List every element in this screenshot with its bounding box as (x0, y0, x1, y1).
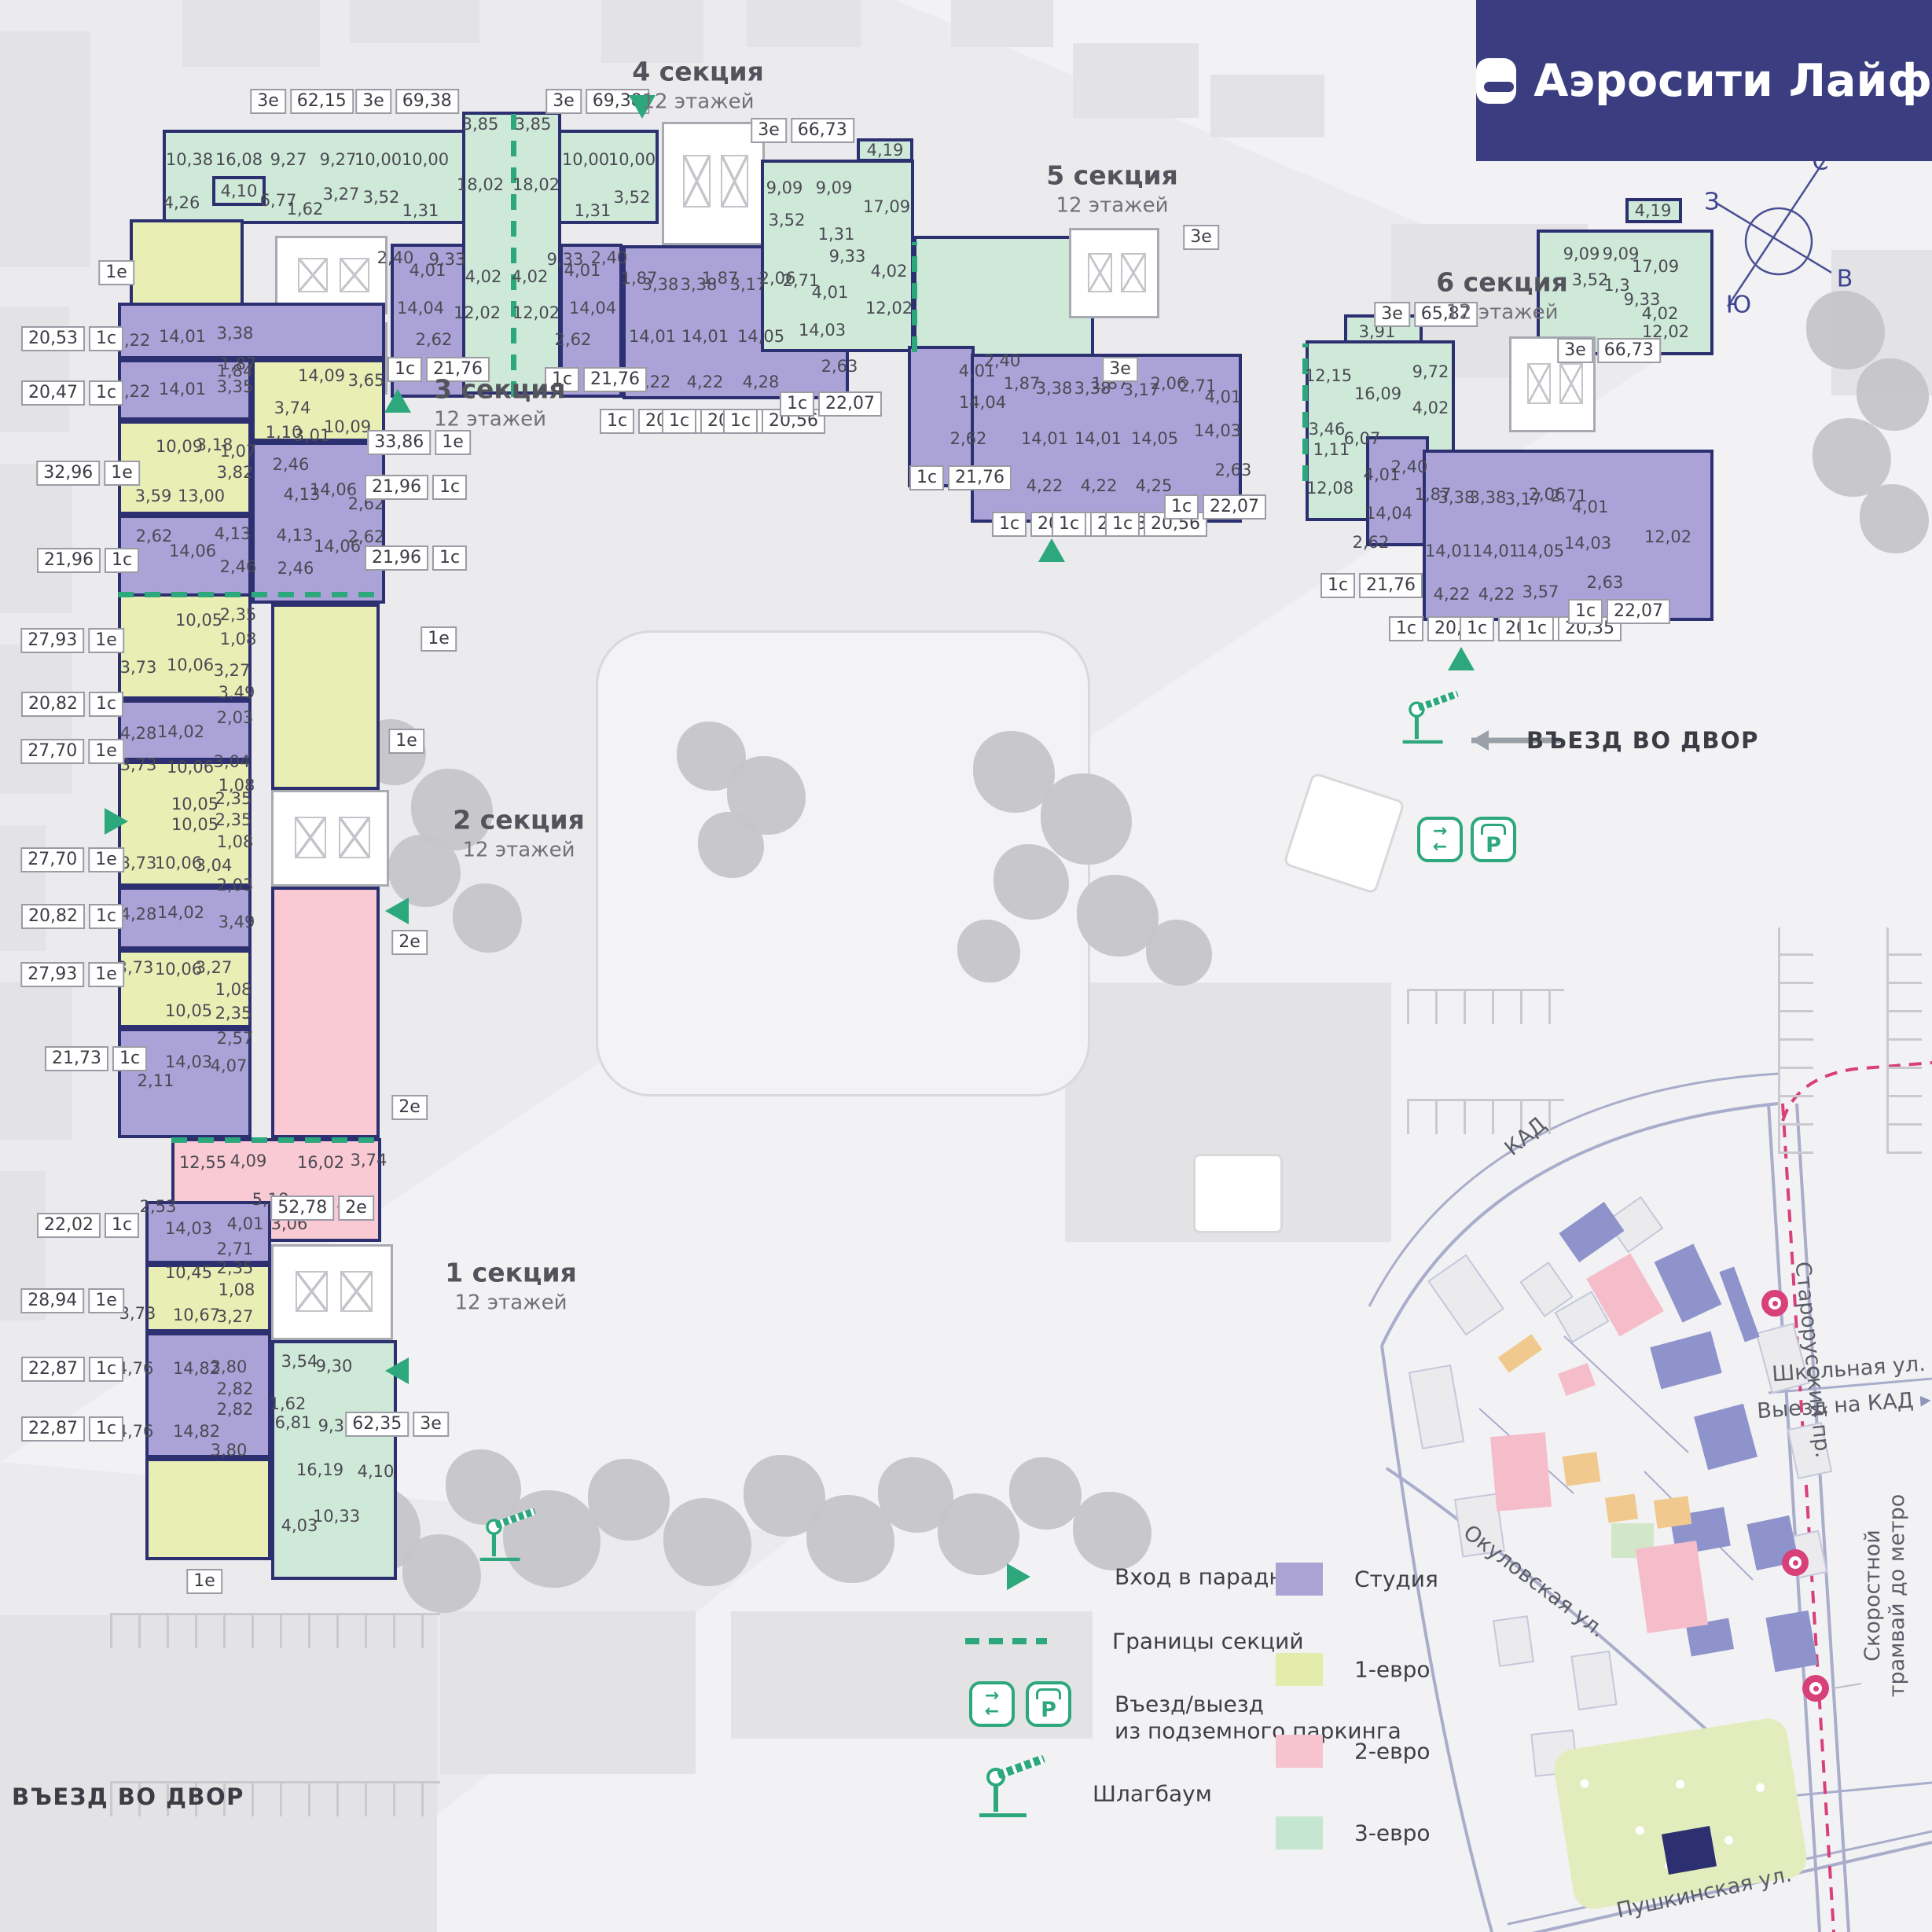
tram-route-label-line: Скоростной (1860, 1494, 1885, 1698)
section-boundary (511, 110, 516, 397)
arrow-glyph: ← (1433, 839, 1447, 855)
tram-stop-dot (1793, 1560, 1798, 1566)
area-tag-value: 1е (88, 739, 124, 764)
minimap-building (1765, 1611, 1817, 1672)
tram-route-label-line: трамвай до метро (1885, 1494, 1909, 1698)
room-area-label: 14,05 (1517, 542, 1564, 560)
neighbor-building (182, 0, 320, 67)
room-area-label: 12,02 (1644, 527, 1691, 546)
tree (957, 920, 1020, 983)
room-area-label: 2,57 (217, 1029, 254, 1048)
room-area-label: 4,03 (281, 1516, 318, 1535)
room-area-label: 10,06 (167, 656, 214, 674)
room-area-label: 3,74 (351, 1151, 388, 1170)
minimap-building (1493, 1615, 1534, 1667)
room-area-label: 3,27 (217, 1307, 254, 1326)
neighbor-building (350, 0, 479, 43)
apartment-block[interactable] (271, 887, 380, 1138)
section-floors: 12 этажей (1436, 301, 1568, 325)
room-area-label: 1,31 (818, 225, 855, 244)
room-area-label: 12,02 (865, 299, 913, 318)
area-tag[interactable]: 22,021с (37, 1213, 139, 1238)
room-area-label: 14,04 (1365, 504, 1412, 523)
tram-route-label: Скоростнойтрамвай до метро (1860, 1494, 1909, 1698)
room-area-label: 16,09 (1354, 384, 1401, 403)
area-tag-type: 1е (98, 260, 134, 285)
elevator-shaft-icon (340, 1271, 373, 1313)
room-area-label: 3,57 (1522, 582, 1559, 601)
area-tag[interactable]: 3е62,15 (250, 89, 354, 114)
room-area-label: 6,81 (275, 1413, 312, 1432)
area-tag-type: 1с (1052, 512, 1086, 537)
room-area-label: 4,02 (1642, 304, 1679, 323)
room-area-label: 3,82 (217, 463, 254, 482)
area-tag-value: 1е (88, 847, 124, 872)
area-tag-value: 66,73 (1597, 338, 1661, 363)
room-area-label: 3,38 (1470, 488, 1507, 507)
area-tag[interactable]: 28,941е (20, 1288, 124, 1313)
area-tag-type: 3е (545, 89, 582, 114)
area-tag-value: 1е (88, 1288, 124, 1313)
neighbor-building (0, 464, 72, 613)
area-tag[interactable]: 3е69,38 (355, 89, 459, 114)
room-area-label: 16,19 (296, 1460, 343, 1479)
neighbor-building (0, 645, 72, 794)
room-area-label: 13,00 (178, 487, 225, 505)
room-area-label: 2,46 (220, 557, 257, 576)
room-area-label: 2,11 (138, 1071, 174, 1090)
minimap-building (1650, 1331, 1722, 1390)
room-area-label: 4,01 (812, 283, 849, 302)
room-area-label: 3,73 (120, 755, 157, 774)
area-tag-value: 1с (112, 1046, 147, 1071)
room-area-label: 10,38 (166, 150, 213, 169)
room-area-label: 3,74 (274, 399, 311, 417)
area-tag-type: 20,53 (21, 326, 85, 351)
area-tag-type: 21,96 (37, 548, 101, 573)
room-area-label: 2,62 (136, 527, 173, 545)
area-tag[interactable]: 20,821с (21, 904, 123, 929)
room-area-label: 17,09 (1632, 257, 1679, 276)
area-tag-type: 1с (1460, 616, 1494, 641)
compass-axis (1716, 203, 1841, 278)
room-area-label: 4,28 (120, 724, 157, 743)
area-tag-value: 1с (89, 904, 123, 929)
neighbor-building (747, 0, 861, 47)
elevator-shaft-icon (683, 155, 711, 208)
tree (1813, 418, 1891, 497)
area-tag[interactable]: 20,531с (21, 326, 123, 351)
room-area-label: 12,08 (1306, 479, 1354, 498)
area-tag[interactable]: 20,471с (21, 380, 123, 406)
apartment-block[interactable] (252, 442, 385, 604)
room-area-label: 14,03 (165, 1219, 212, 1238)
area-tag[interactable]: 1с22,07 (780, 391, 882, 417)
stair-core (271, 790, 389, 887)
room-area-label: 2,63 (1587, 573, 1624, 592)
room-area-label: 3,85 (515, 115, 552, 134)
area-tag-type: 21,96 (365, 545, 428, 571)
elevator-shaft-icon (298, 258, 328, 292)
room-area-label: 4,01 (959, 362, 996, 380)
room-area-label: 3,52 (769, 211, 806, 230)
area-tag-type: 28,94 (20, 1288, 84, 1313)
room-area-label: 14,04 (959, 393, 1006, 412)
neighbor-building (951, 0, 1053, 47)
underground-parking-icon: P (1471, 817, 1516, 862)
compass-needle (1728, 156, 1827, 307)
entrance-marker[interactable] (385, 1357, 409, 1384)
room-area-label: 2,82 (217, 1379, 254, 1398)
area-tag[interactable]: 1е (186, 1569, 222, 1594)
room-area-label: 10,05 (165, 1001, 212, 1020)
room-area-label: 3,46 (1309, 420, 1346, 439)
section-name: 3 секция (434, 374, 566, 405)
area-tag[interactable]: 2е (391, 930, 428, 955)
room-area-label: 10,05 (175, 611, 222, 630)
room-area-label: 3,38 (642, 275, 679, 294)
compass-letter: З (1704, 189, 1719, 216)
room-area-label: 2,03 (217, 876, 254, 894)
area-tag[interactable]: 3е (1102, 357, 1138, 382)
room-area-label: 4,22 (1027, 476, 1063, 495)
room-area-label: 2,71 (217, 1240, 254, 1258)
room-area-label: 3,80 (211, 1357, 248, 1376)
section-label-4: 4 секция12 этажей (632, 57, 764, 114)
area-tag-type: 3е (250, 89, 286, 114)
area-tag-type: 2е (391, 930, 428, 955)
area-tag[interactable]: 1е (421, 626, 457, 652)
area-tag-value: 21,76 (583, 367, 647, 392)
area-tag-type: 1с (992, 512, 1027, 537)
area-tag-value: 1с (89, 380, 123, 406)
section-name: 4 секция (632, 57, 764, 87)
room-area-label: 2,82 (217, 1400, 254, 1419)
room-area-label: 10,33 (313, 1507, 360, 1526)
area-tag-type: 21,96 (365, 475, 428, 500)
room-area-label: 14,03 (799, 321, 846, 340)
legend-type-swatch (1276, 1816, 1323, 1849)
legend-type-swatch (1276, 1735, 1323, 1768)
area-tag[interactable]: 1с22,07 (1164, 494, 1266, 520)
elevator-shaft-icon (296, 1271, 328, 1313)
room-area-label: 4,10 (358, 1462, 395, 1481)
area-tag[interactable]: 27,931е (20, 962, 124, 987)
area-tag-type: 1с (1568, 599, 1603, 624)
room-area-label: 2,40 (377, 248, 414, 267)
tram-stop-inner (1789, 1556, 1802, 1569)
apartment-block[interactable] (145, 1458, 271, 1560)
tree (388, 835, 461, 907)
room-area-label: 10,00 (402, 150, 449, 169)
tree (1073, 1492, 1151, 1570)
site-plan: Аэросити Лайф Вход в параднуюГраницы сек… (0, 0, 1932, 1932)
entrance-marker[interactable] (384, 389, 411, 413)
room-area-label: 4,22 (1434, 585, 1471, 604)
room-area-label: 4,02 (871, 262, 908, 281)
room-area-label: 4,25 (1136, 476, 1173, 495)
area-tag-type: 20,82 (21, 692, 85, 717)
room-area-label: 4,01 (227, 1214, 264, 1233)
section-label-6: 6 секция12 этажей (1436, 267, 1568, 325)
elevator-shaft-icon (1559, 363, 1583, 405)
area-tag-value: 21,76 (948, 465, 1012, 490)
minimap-building (1490, 1432, 1552, 1511)
area-tag-value: 1с (105, 1213, 139, 1238)
area-tag[interactable]: 27,931е (20, 628, 124, 653)
room-area-label: 3,27 (196, 958, 233, 977)
park-tree-dot (1580, 1779, 1590, 1789)
room-area-label: 14,09 (298, 366, 345, 385)
room-area-label: 9,27 (270, 150, 307, 169)
apartment-block[interactable] (271, 604, 380, 790)
area-tag-type: 27,93 (20, 962, 84, 987)
stair-core (271, 1244, 393, 1340)
section-floors: 12 этажей (1046, 194, 1178, 218)
legend-type-label: 3-евро (1354, 1820, 1431, 1846)
parking-row (1886, 927, 1922, 1154)
area-tag-type: 1с (1519, 616, 1554, 641)
minimap-building (1655, 1243, 1722, 1322)
area-tag-value: 1е (104, 461, 140, 486)
minimap-building (1654, 1496, 1692, 1529)
street-label: Выезд на КАД ▸ (1756, 1387, 1931, 1423)
area-tag-type: 27,70 (20, 739, 84, 764)
room-area-label: 3,65 (348, 371, 385, 390)
entrance-marker[interactable] (385, 898, 409, 924)
area-tag[interactable]: 32,961е (36, 461, 140, 486)
tree (453, 883, 522, 953)
room-area-label: 3,80 (211, 1441, 248, 1460)
room-area-label: 1,08 (217, 832, 254, 851)
barrier-base (480, 1558, 520, 1561)
area-tag-value: 1с (89, 1357, 123, 1382)
exit-arrow-glyph: ▸ (1912, 1387, 1931, 1412)
area-tag-type: 1е (388, 729, 424, 754)
area-tag[interactable]: 3е (1183, 225, 1219, 250)
barrier-base (1403, 740, 1443, 744)
area-tag-value: 1с (105, 548, 139, 573)
area-tag[interactable]: 52,782е (270, 1196, 374, 1221)
area-tag-type: 2е (391, 1095, 428, 1120)
area-tag[interactable]: 21,731с (45, 1046, 147, 1071)
area-tag[interactable]: 27,701е (20, 847, 124, 872)
area-tag-value: 22,07 (818, 391, 882, 417)
room-area-label: 4,28 (120, 905, 157, 924)
compass-circle (1746, 208, 1812, 274)
room-area-label: 1,08 (219, 1280, 255, 1299)
room-area-label: 14,05 (737, 327, 784, 346)
room-area-label: 14,01 (1425, 542, 1472, 560)
area-tag[interactable]: 1с22,07 (1568, 599, 1670, 624)
tram-stop-icon (1782, 1549, 1809, 1576)
area-tag-type: 21,73 (45, 1046, 108, 1071)
room-area-label: 2,03 (217, 708, 254, 727)
area-tag[interactable]: 33,861е (367, 430, 471, 455)
room-area-label: 4,22 (687, 373, 724, 391)
room-area-label: 4,13 (277, 526, 314, 545)
tram-stop-inner (1809, 1682, 1822, 1695)
entrance-marker[interactable] (105, 808, 128, 835)
area-tag-value: 21,76 (1359, 573, 1423, 598)
room-area-label: 4,22 (1478, 585, 1515, 604)
room-area-label: 2,35 (217, 1258, 254, 1277)
room-area-label: 10,05 (171, 795, 219, 814)
room-area-label: 14,06 (169, 542, 216, 560)
room-area-label: 12,55 (179, 1153, 226, 1172)
neighbor-building (1073, 43, 1199, 118)
area-tag[interactable]: 1е (388, 729, 424, 754)
logo-text: Аэросити Лайф (1533, 55, 1932, 107)
area-tag[interactable]: 1с21,76 (909, 465, 1012, 490)
elevator-shaft-icon (295, 817, 326, 858)
room-area-label: 9,72 (1412, 362, 1449, 381)
tree (1009, 1457, 1082, 1530)
neighbor-building (0, 1615, 437, 1932)
area-tag[interactable]: 2е (391, 1095, 428, 1120)
area-tag-type: 20,47 (21, 380, 85, 406)
room-area-label: 12,02 (454, 303, 501, 322)
room-area-label: 14,03 (165, 1052, 212, 1071)
minimap-building (1636, 1541, 1708, 1633)
room-area-label: 3,01 (294, 426, 331, 445)
park-tree-dot (1755, 1783, 1765, 1793)
section-label-1: 1 секция12 этажей (445, 1258, 577, 1315)
area-tag-value: 1с (89, 326, 123, 351)
section-floors: 12 этажей (445, 1291, 577, 1315)
room-area-label: 3,27 (323, 185, 360, 204)
room-area-label: 2,62 (348, 527, 385, 546)
room-area-label: 3,73 (119, 1304, 156, 1323)
room-area-label: 4,01 (1205, 388, 1242, 406)
room-area-label: 14,02 (157, 903, 204, 922)
room-area-label: 17,09 (863, 197, 910, 216)
minimap-building (1694, 1404, 1758, 1470)
area-tag[interactable]: 22,871с (21, 1416, 123, 1442)
room-area-label: 1,84 (217, 362, 254, 380)
room-area-label: 14,82 (173, 1422, 220, 1441)
neighbor-building (440, 1611, 696, 1774)
room-area-label: 1,08 (215, 980, 252, 999)
label-leader (1833, 1684, 1861, 1688)
tree (1146, 920, 1212, 986)
area-tag[interactable]: 62,353е (345, 1412, 449, 1437)
room-area-label: 4,02 (512, 267, 549, 286)
entrance-marker[interactable] (1038, 538, 1065, 562)
apartment-block[interactable] (130, 219, 244, 314)
section-name: 1 секция (445, 1258, 577, 1288)
room-area-label: 4,19 (867, 141, 904, 160)
minimap-building (1570, 1651, 1617, 1710)
room-area-label: 4,01 (1364, 465, 1401, 484)
area-tag-value: 66,73 (791, 118, 854, 143)
legend-type-label: Студия (1354, 1567, 1438, 1592)
area-tag-type: 27,93 (20, 628, 84, 653)
room-area-label: 2,62 (950, 429, 987, 448)
room-area-label: 3,52 (614, 188, 651, 207)
room-area-label: 14,03 (1194, 421, 1241, 440)
area-tag-type: 1с (723, 409, 758, 434)
area-tag[interactable]: 27,701е (20, 739, 124, 764)
area-tag[interactable]: 1с21,76 (1320, 573, 1423, 598)
room-area-label: 14,01 (159, 380, 206, 399)
room-area-label: 14,02 (157, 722, 204, 741)
room-area-label: 3,38 (1036, 379, 1073, 398)
area-tag[interactable]: 21,961с (365, 475, 467, 500)
neighbor-building (0, 825, 46, 951)
room-area-label: 14,03 (1564, 534, 1611, 553)
area-tag-type: 32,96 (36, 461, 100, 486)
minimap-building (1563, 1452, 1601, 1486)
barrier-arm (997, 1754, 1045, 1780)
tram-stop-dot (1772, 1301, 1778, 1306)
area-tag[interactable]: 21,961с (37, 548, 139, 573)
area-tag-type: 22,87 (21, 1357, 85, 1382)
area-tag-type: 1с (1320, 573, 1355, 598)
room-area-label: 2,62 (555, 330, 592, 349)
minimap-building (1498, 1334, 1542, 1372)
area-tag-value: 1е (88, 628, 124, 653)
room-area-label: 4,22 (1081, 476, 1118, 495)
section-name: 6 секция (1436, 267, 1568, 298)
area-tag-type: 1с (909, 465, 944, 490)
entrance-marker[interactable] (1448, 647, 1475, 670)
room-area-label: 4,09 (230, 1151, 267, 1170)
area-tag[interactable]: 3е66,73 (751, 118, 854, 143)
room-area-label: 3,54 (281, 1352, 318, 1371)
room-area-label: 18,02 (457, 175, 504, 194)
barrier-arm (494, 1508, 536, 1529)
area-tag[interactable]: 3е66,73 (1557, 338, 1661, 363)
room-area-label: 1,87 (1004, 374, 1041, 393)
area-tag[interactable]: 20,821с (21, 692, 123, 717)
room-area-label: 4,10 (221, 182, 258, 200)
barrier-arm (1417, 690, 1459, 711)
minimap-building (1558, 1363, 1596, 1396)
room-area-label: 2,46 (273, 455, 310, 474)
barrier-icon (1401, 689, 1463, 744)
room-area-label: 4,07 (211, 1056, 248, 1075)
area-tag[interactable]: 22,871с (21, 1357, 123, 1382)
room-area-label: 12,15 (1305, 366, 1352, 385)
room-area-label: 3,52 (363, 188, 400, 207)
parking-glyph: P (1041, 1699, 1056, 1721)
room-area-label: 2,35 (215, 1004, 252, 1023)
tree (994, 844, 1069, 920)
area-tag[interactable]: 21,961с (365, 545, 467, 571)
room-area-label: 2,62 (1353, 533, 1390, 552)
courtyard-area (1193, 1154, 1283, 1233)
room-area-label: 9,09 (1563, 244, 1600, 263)
legend-item-label: Границы секций (1112, 1629, 1304, 1655)
area-tag[interactable]: 1е (98, 260, 134, 285)
minimap-building (1559, 1202, 1624, 1262)
area-tag-value: 1с (89, 692, 123, 717)
room-area-label: 3,49 (219, 913, 255, 931)
room-area-label: 3,85 (462, 115, 499, 134)
room-area-label: 9,30 (316, 1357, 353, 1376)
legend-type-label: 2-евро (1354, 1739, 1431, 1765)
area-tag-type: 1е (186, 1569, 222, 1594)
room-area-label: 14,01 (1074, 429, 1122, 448)
legend-item-label: Въезд/выезд (1115, 1691, 1264, 1717)
room-area-label: 14,01 (1021, 429, 1068, 448)
section-label-3: 3 секция12 этажей (434, 374, 566, 432)
room-area-label: 4,13 (215, 524, 252, 543)
tree (1857, 358, 1929, 431)
section-boundary (118, 592, 385, 597)
room-area-label: 14,01 (681, 327, 729, 346)
